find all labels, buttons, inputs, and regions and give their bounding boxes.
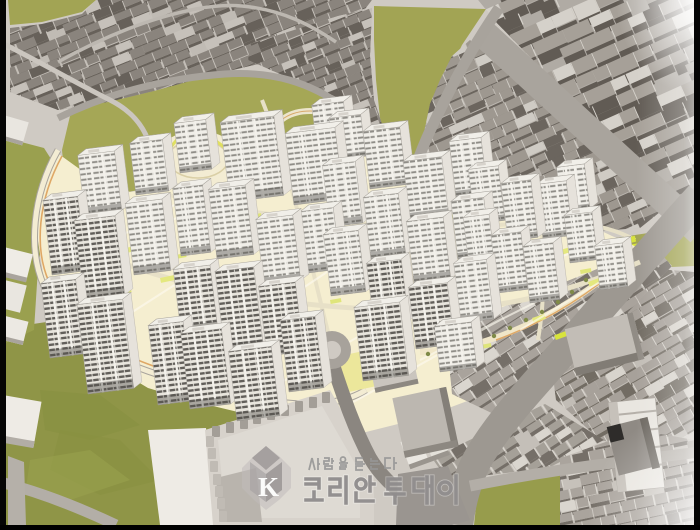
svg-text:K: K — [258, 472, 279, 502]
